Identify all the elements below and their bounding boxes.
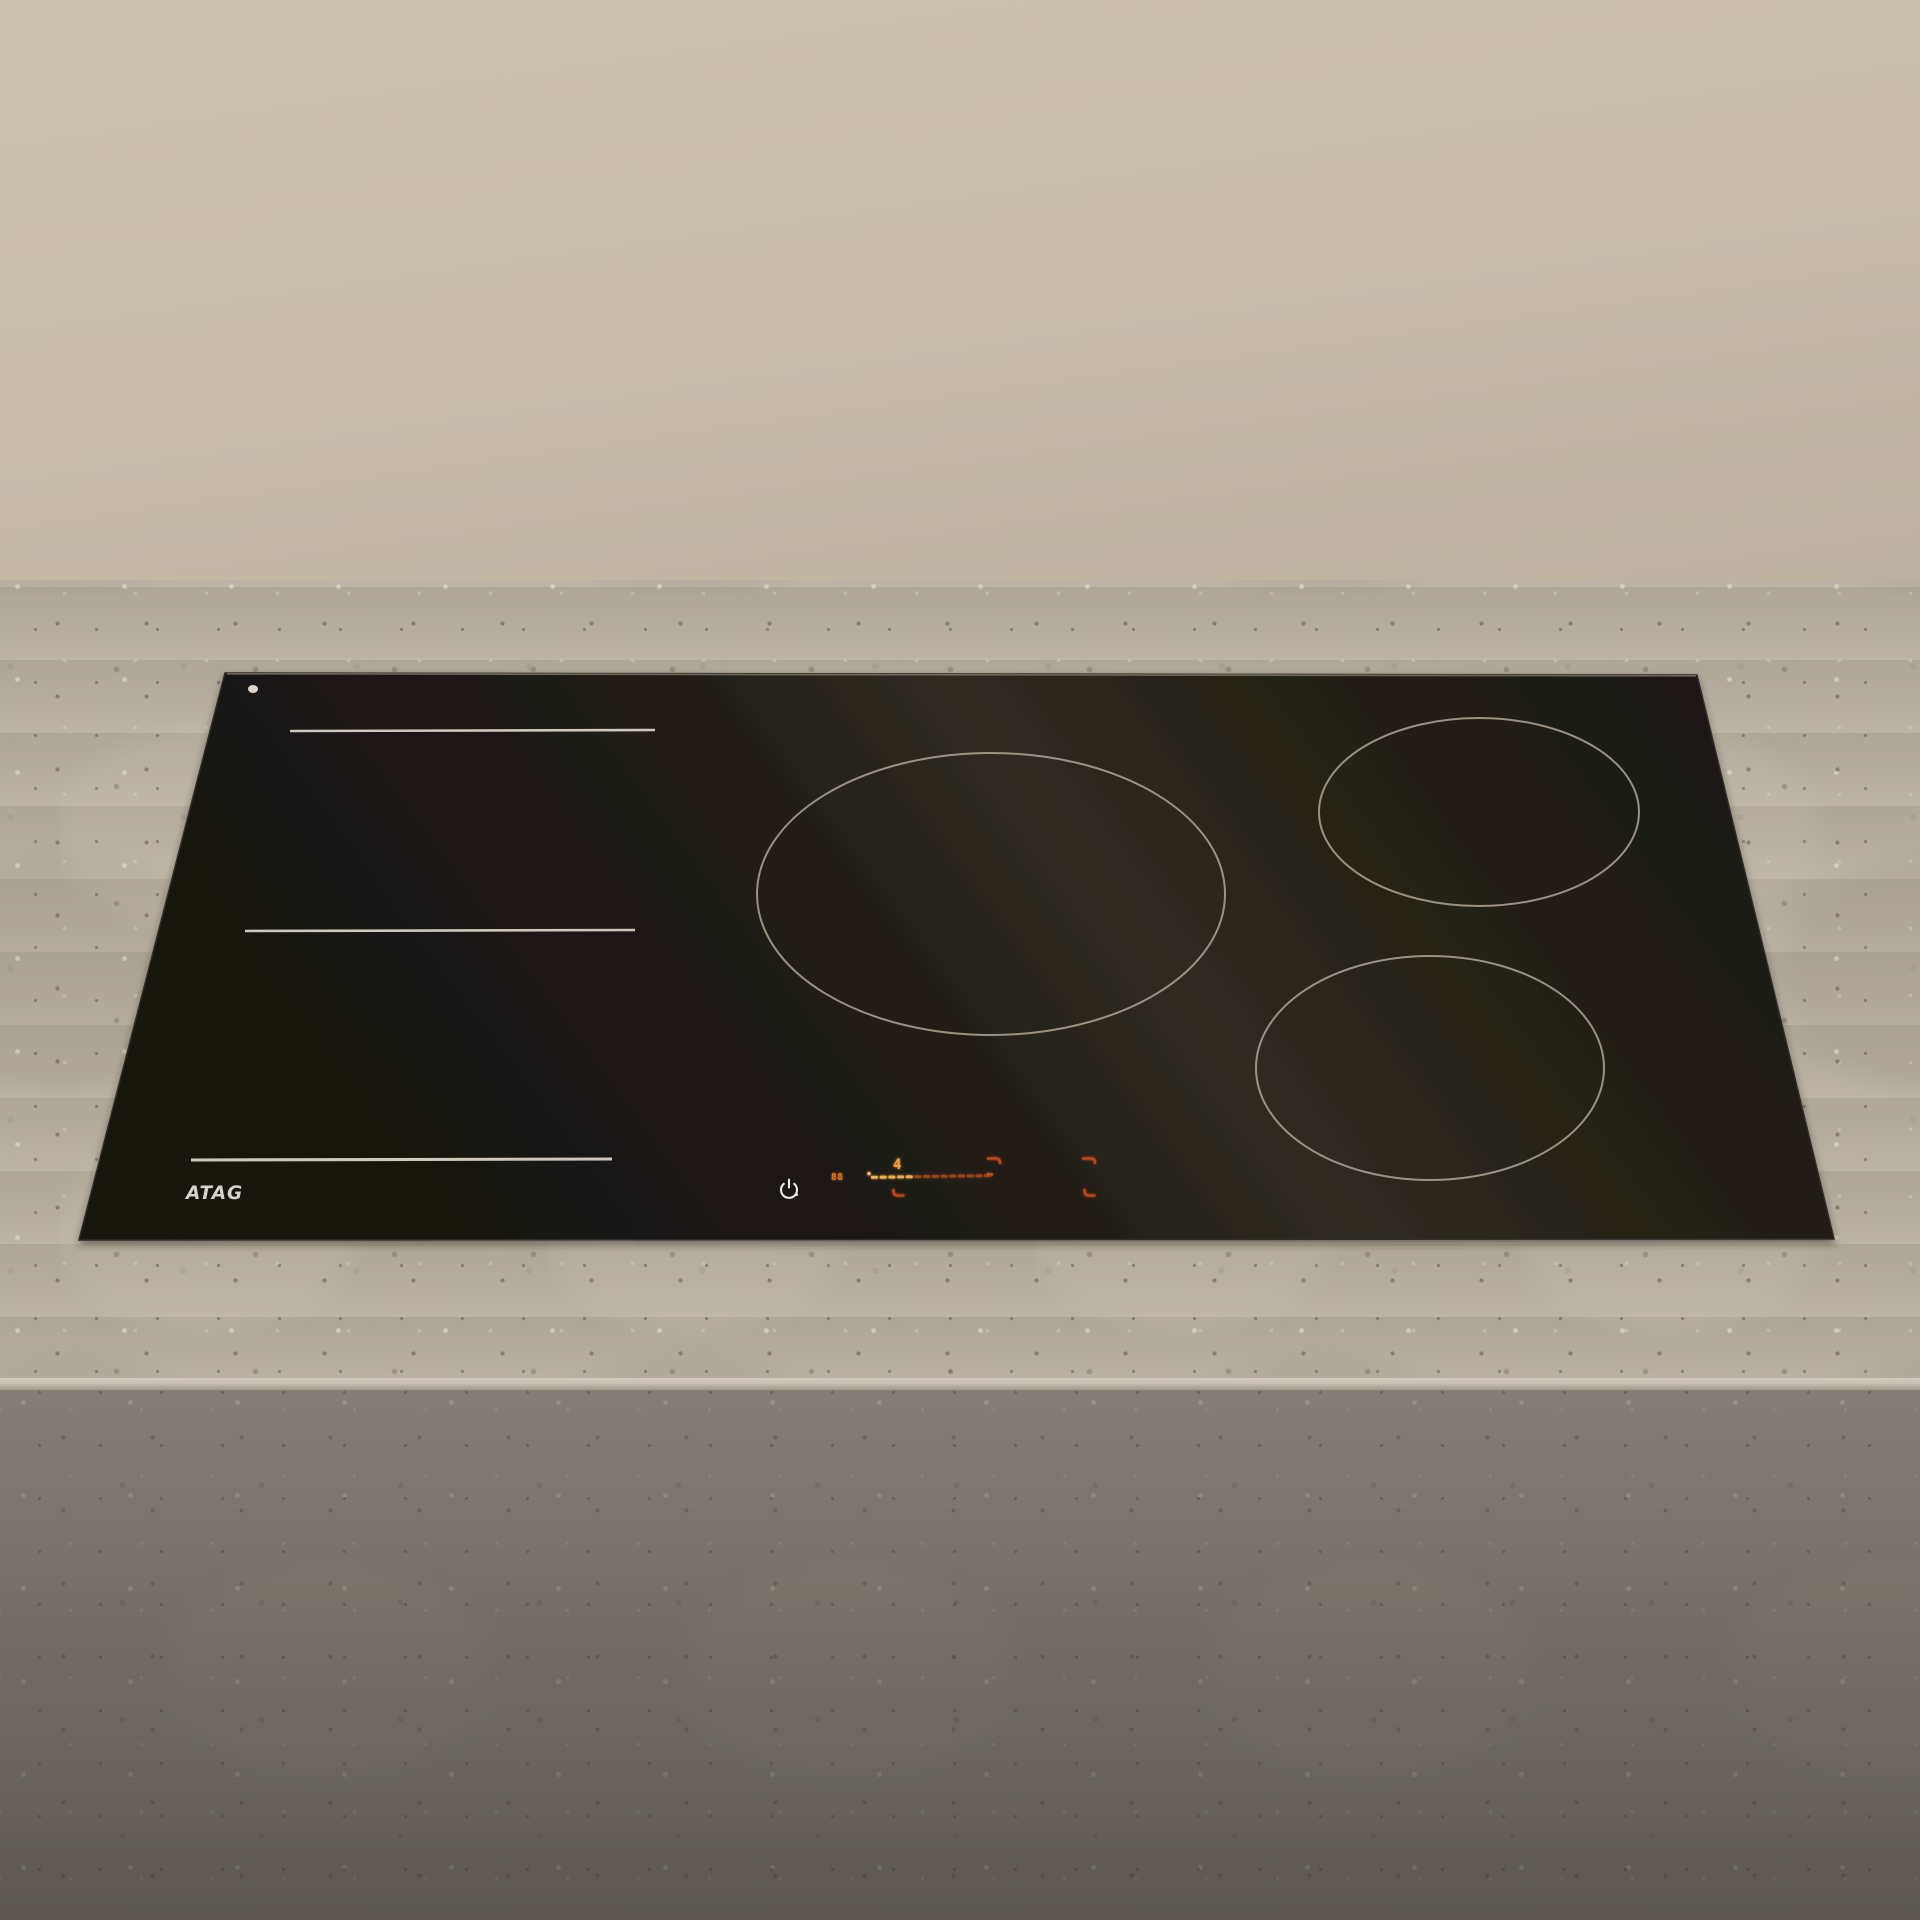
slider-end-dot-1: [987, 1173, 989, 1175]
induction-hob: ATAG 88 4: [0, 0, 1920, 1920]
power-slider-segment[interactable]: [975, 1174, 982, 1177]
indicator-dot: [248, 685, 258, 693]
power-level-display: 4: [893, 1157, 901, 1173]
power-slider-segment[interactable]: [871, 1176, 878, 1179]
brand-logo: ATAG: [184, 1183, 243, 1204]
power-slider-segment[interactable]: [967, 1174, 974, 1177]
scene: ATAG 88 4: [0, 0, 1920, 1920]
power-slider-segment[interactable]: [949, 1175, 956, 1178]
power-slider-segment[interactable]: [941, 1175, 948, 1178]
power-slider-segment[interactable]: [897, 1176, 904, 1179]
slider-end-dot-2: [991, 1173, 993, 1175]
flex-zone-line-middle: [245, 930, 635, 931]
flex-zone-line-bottom: [191, 1159, 612, 1160]
power-slider-segment[interactable]: [880, 1176, 887, 1179]
power-slider-segment[interactable]: [906, 1175, 913, 1178]
power-touch-dot: [795, 1193, 798, 1196]
slider-start-dot: [867, 1172, 870, 1175]
power-slider-segment[interactable]: [932, 1175, 939, 1178]
power-slider-segment[interactable]: [915, 1175, 922, 1178]
hob-glass: [79, 673, 1834, 1240]
power-slider-segment[interactable]: [888, 1176, 895, 1179]
power-slider-segment[interactable]: [958, 1175, 965, 1178]
flex-zone-line-top: [290, 730, 655, 731]
power-slider-segment[interactable]: [923, 1175, 930, 1178]
timer-display: 88: [831, 1172, 843, 1183]
